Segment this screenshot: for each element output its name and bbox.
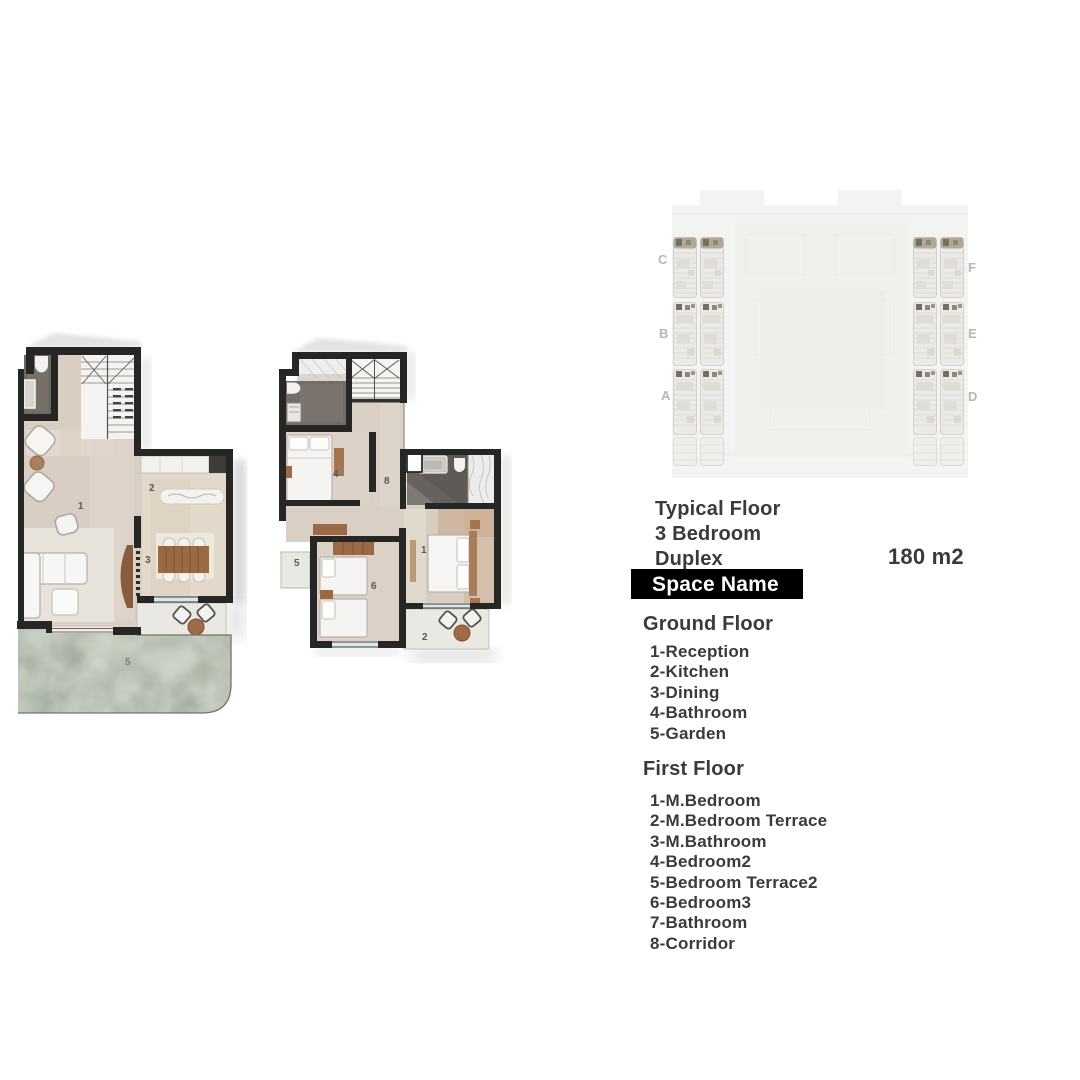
svg-text:1: 1: [78, 501, 84, 512]
svg-text:C: C: [658, 252, 668, 267]
svg-text:4: 4: [333, 469, 339, 480]
svg-text:3: 3: [145, 555, 151, 566]
svg-text:B: B: [659, 326, 668, 341]
svg-text:D: D: [968, 389, 977, 404]
svg-text:2: 2: [149, 483, 155, 494]
svg-text:2: 2: [422, 632, 428, 643]
svg-text:5: 5: [125, 657, 131, 668]
svg-text:1: 1: [421, 545, 427, 556]
svg-text:F: F: [968, 260, 976, 275]
svg-text:E: E: [968, 326, 977, 341]
svg-text:A: A: [661, 388, 671, 403]
svg-text:8: 8: [384, 476, 390, 487]
svg-text:6: 6: [371, 581, 377, 592]
svg-text:5: 5: [294, 558, 300, 569]
